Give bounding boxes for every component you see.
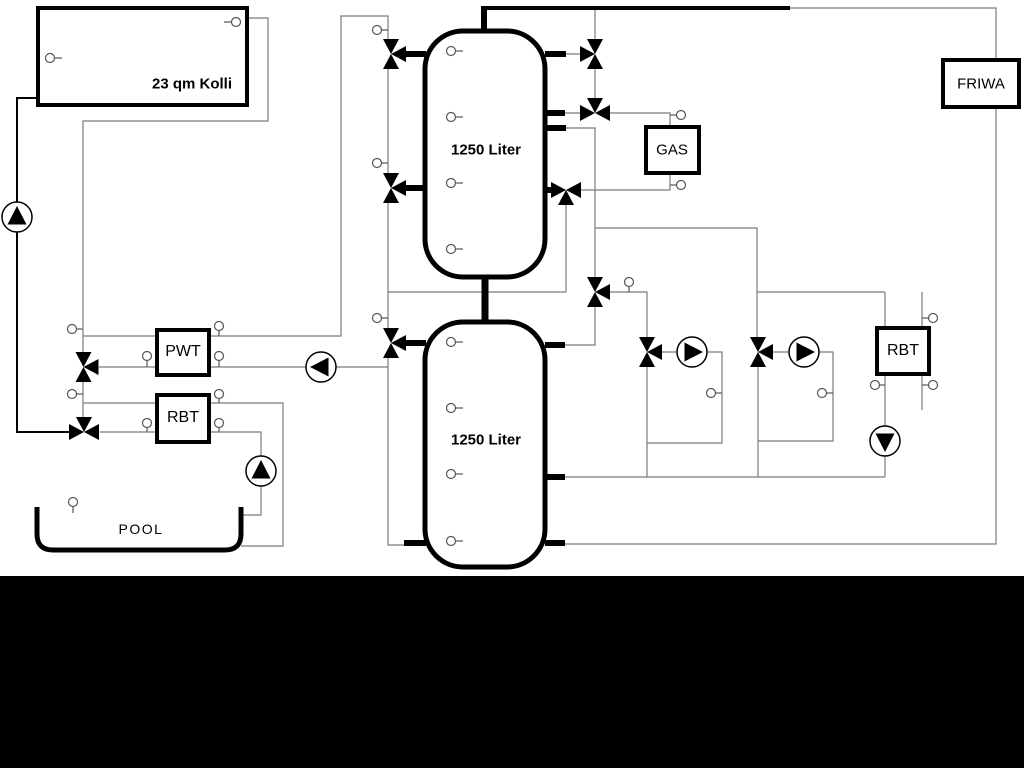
solar-pump: [2, 202, 32, 232]
valve-tank1-left-mid: [383, 173, 406, 203]
tank-top-header-pipe: [484, 6, 790, 31]
pwt-label: PWT: [165, 344, 201, 360]
collector-flow-pipe: [17, 98, 69, 432]
circuit1-pump: [677, 337, 707, 367]
rbt-left-label: RBT: [167, 410, 199, 426]
valve-solar-pwt: [76, 352, 99, 382]
tank-upper-label: 1250 Liter: [451, 143, 521, 158]
hydraulic-schematic: .g{stroke:#7a7a7a;stroke-width:1.2;fill:…: [0, 0, 1024, 768]
valve-pool-rbt: [69, 417, 99, 440]
valve-gas-return: [551, 182, 581, 205]
heating-circuit-pipes: [565, 292, 922, 477]
valve-circuit2-mixer: [750, 337, 773, 367]
pool-pump: [246, 456, 276, 486]
friwa-pipes: [565, 8, 996, 544]
valve-heating-supply: [587, 277, 610, 307]
friwa-label: FRIWA: [957, 77, 1005, 92]
pool-label: POOL: [119, 522, 164, 536]
valve-tank2-left: [383, 328, 406, 358]
valve-gas-flow: [580, 98, 610, 121]
valve-tank1-right-top: [580, 39, 603, 69]
collector-label: 23 qm Kolli: [152, 77, 232, 92]
rbt-right-pump: [870, 426, 900, 456]
bottom-black-band: [0, 576, 1024, 768]
rbt-right-label: RBT: [887, 343, 919, 359]
tank-lower-label: 1250 Liter: [451, 433, 521, 448]
pwt-loop-pump: [306, 352, 336, 382]
valve-tank1-left-top: [383, 39, 406, 69]
gas-boiler-label: GAS: [656, 143, 688, 158]
valve-circuit1-mixer: [639, 337, 662, 367]
circuit2-pump: [789, 337, 819, 367]
